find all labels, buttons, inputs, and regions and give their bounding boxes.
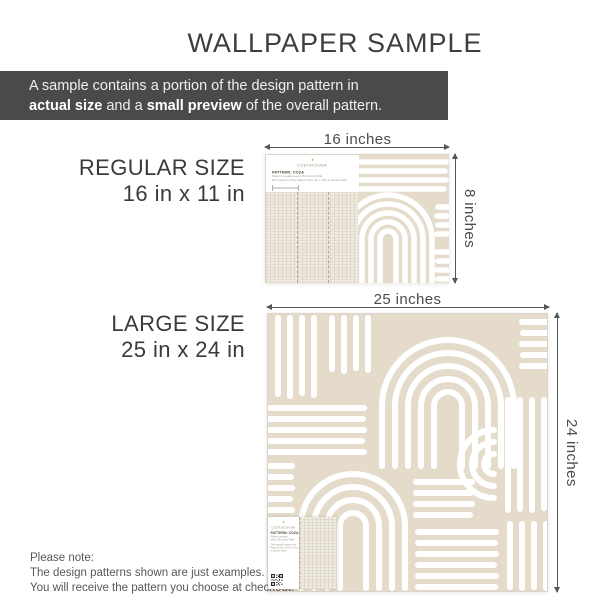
footer-note-line: Please note: xyxy=(30,551,294,566)
large-sample-card: ✦ COSTACOVER PATTERN: COZA Pattern repea… xyxy=(267,313,548,592)
large-size-name: LARGE SIZE xyxy=(25,311,245,337)
mini-ruler-arrow xyxy=(272,185,300,191)
footer-note-line: You will receive the pattern you choose … xyxy=(30,581,294,596)
regular-size-name: REGULAR SIZE xyxy=(25,155,245,181)
pattern-title: PATTERN: COZA xyxy=(271,532,300,536)
logo-ornament-icon: ✦ xyxy=(266,158,359,163)
large-width-dimension-label: 25 inches xyxy=(267,291,548,308)
pattern-note-line: Mini swatch of the Pattern Size 4in x 13… xyxy=(272,179,359,183)
brand-logo: ✦ COSTACOVER xyxy=(266,158,359,168)
sample-label-sticker: ✦ COSTACOVER PATTERN: COZA Pattern repea… xyxy=(268,517,337,589)
footer-note-line: The design patterns shown are just examp… xyxy=(30,566,294,581)
wallpaper-pattern-regular xyxy=(358,155,449,283)
brand-name: COSTACOVER xyxy=(297,164,327,168)
regular-width-arrow xyxy=(265,147,449,148)
brand-name: COSTACOVER xyxy=(271,527,295,530)
fold-line xyxy=(297,192,298,283)
page-title: WALLPAPER SAMPLE xyxy=(110,28,560,59)
brand-logo: ✦ COSTACOVER xyxy=(268,520,299,530)
pattern-title: PATTERN: COZA xyxy=(272,170,359,175)
logo-ornament-icon: ✦ xyxy=(268,520,299,525)
folded-swatch-texture xyxy=(266,192,359,283)
wallpaper-sample-infographic: WALLPAPER SAMPLE A sample contains a por… xyxy=(0,0,600,600)
regular-sample-header: ✦ COSTACOVER PATTERN: COZA Pattern repea… xyxy=(266,155,359,192)
sticker-info-panel: ✦ COSTACOVER PATTERN: COZA Pattern repea… xyxy=(268,517,299,589)
large-height-arrow xyxy=(557,313,558,592)
large-size-label: LARGE SIZE 25 in x 24 in xyxy=(25,311,245,363)
large-size-dimensions: 25 in x 24 in xyxy=(25,337,245,363)
regular-size-label: REGULAR SIZE 16 in x 11 in xyxy=(25,155,245,207)
regular-width-dimension-label: 16 inches xyxy=(267,131,448,148)
banner-line-1: A sample contains a portion of the desig… xyxy=(29,76,448,96)
banner-line-2: actual size and a small preview of the o… xyxy=(29,96,448,116)
sticker-swatch-texture xyxy=(299,517,337,589)
regular-sample-card: ✦ COSTACOVER PATTERN: COZA Pattern repea… xyxy=(265,154,449,283)
regular-size-dimensions: 16 in x 11 in xyxy=(25,181,245,207)
regular-height-arrow xyxy=(455,154,456,283)
footer-note: Please note: The design patterns shown a… xyxy=(30,551,294,596)
info-banner: A sample contains a portion of the desig… xyxy=(0,71,448,120)
fold-line xyxy=(328,192,329,283)
pattern-note-line: in actual scale xyxy=(271,550,300,553)
large-width-arrow xyxy=(267,307,549,308)
qr-code-icon xyxy=(271,574,283,586)
large-height-dimension-label: 24 inches xyxy=(563,313,580,592)
regular-height-dimension-label: 8 inches xyxy=(461,154,478,283)
